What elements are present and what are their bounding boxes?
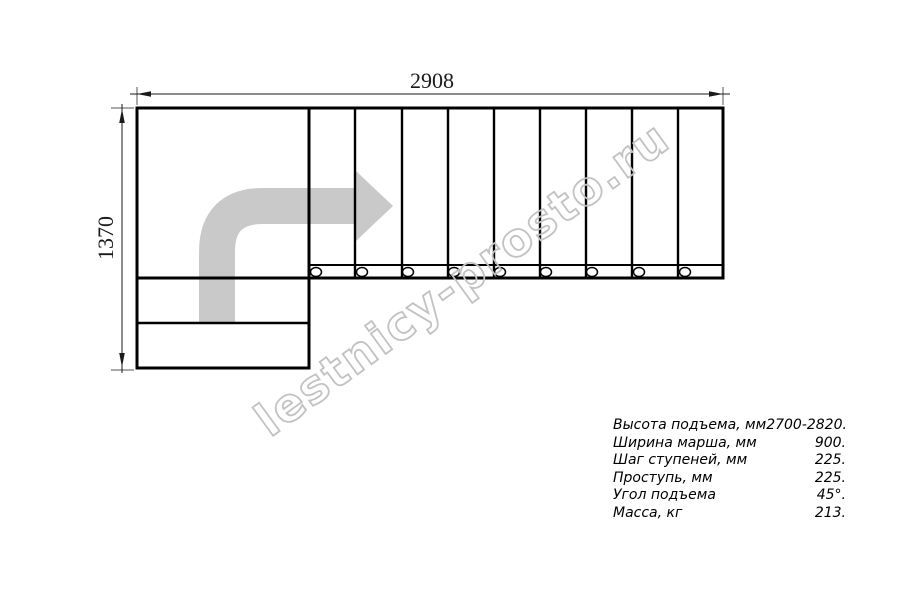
spec-row: Проступь, мм 225. bbox=[613, 470, 846, 488]
baluster-post-icon bbox=[634, 268, 645, 277]
dimension-arrow-icon bbox=[137, 91, 151, 97]
left-dimension: 1370 bbox=[93, 104, 134, 373]
spec-row: Высота подъема, мм 2700-2820. bbox=[613, 417, 846, 435]
spec-value: 45°. bbox=[817, 487, 846, 505]
specs-table: Высота подъема, мм 2700-2820. Ширина мар… bbox=[613, 417, 846, 523]
spec-label: Высота подъема, мм bbox=[613, 417, 766, 435]
spec-value: 900. bbox=[815, 435, 846, 453]
spec-label: Проступь, мм bbox=[613, 470, 713, 488]
left-dimension-label: 1370 bbox=[93, 216, 118, 260]
baluster-post-icon bbox=[403, 268, 414, 277]
stair-plan-page: 2908 1370 lestnicy-prosto.ru Высота подъ… bbox=[0, 0, 900, 600]
direction-arrow-head bbox=[356, 171, 393, 241]
direction-arrow-icon bbox=[217, 171, 393, 323]
baluster-post-icon bbox=[587, 268, 598, 277]
dimension-arrow-icon bbox=[119, 109, 125, 123]
spec-value: 225. bbox=[815, 470, 846, 488]
spec-row: Угол подъема 45°. bbox=[613, 487, 846, 505]
top-dimension: 2908 bbox=[130, 68, 730, 105]
baluster-post-icon bbox=[680, 268, 691, 277]
spec-label: Масса, кг bbox=[613, 505, 682, 523]
spec-row: Масса, кг 213. bbox=[613, 505, 846, 523]
baluster-post-icon bbox=[311, 268, 322, 277]
spec-label: Ширина марша, мм bbox=[613, 435, 757, 453]
dimension-arrow-icon bbox=[709, 91, 723, 97]
spec-label: Шаг ступеней, мм bbox=[613, 452, 747, 470]
baluster-post-icon bbox=[357, 268, 368, 277]
spec-value: 225. bbox=[815, 452, 846, 470]
top-dimension-label: 2908 bbox=[410, 68, 454, 93]
spec-row: Ширина марша, мм 900. bbox=[613, 435, 846, 453]
spec-label: Угол подъема bbox=[613, 487, 716, 505]
spec-row: Шаг ступеней, мм 225. bbox=[613, 452, 846, 470]
spec-value: 213. bbox=[815, 505, 846, 523]
spec-value: 2700-2820. bbox=[766, 417, 847, 435]
baluster-post-icon bbox=[541, 268, 552, 277]
dimension-arrow-icon bbox=[119, 353, 125, 367]
